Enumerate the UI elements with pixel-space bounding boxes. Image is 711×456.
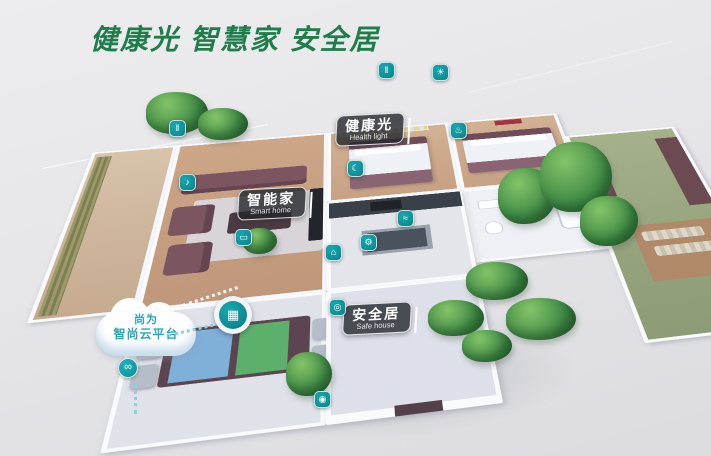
- curtains: [37, 156, 112, 317]
- link-icon: ∞: [118, 358, 138, 378]
- armchair: [167, 204, 216, 237]
- curtain-icon: ‖: [378, 62, 395, 79]
- water-icon: ≈: [397, 210, 414, 227]
- door-icon: ⌂: [325, 244, 342, 261]
- tag-smart-home-en: Smart home: [246, 206, 295, 217]
- curtain-icon: ‖: [169, 120, 186, 137]
- front-door: [394, 400, 443, 417]
- dotted-connection: [134, 384, 137, 414]
- doorbell-icon: ◉: [314, 391, 331, 408]
- tv-icon: ▭: [235, 229, 252, 246]
- tag-health-light-en: Health light: [344, 132, 393, 143]
- smart-hub: ▦: [214, 296, 252, 334]
- toilet: [484, 221, 505, 235]
- bath-icon: ♨: [450, 122, 467, 139]
- speaker-icon: ♪: [179, 174, 196, 191]
- tag-safe-house-en: Safe house: [351, 321, 400, 332]
- sensor-icon: ◎: [329, 299, 346, 316]
- tag-health-light: 健康光 Health light: [335, 112, 405, 147]
- poster-canvas: 健康光 智慧家 安全居: [0, 0, 711, 456]
- smart-hub-icon: ▦: [219, 301, 247, 329]
- armchair: [162, 241, 213, 276]
- cloud-brand: 尚为: [96, 314, 196, 327]
- front-wall: [442, 395, 501, 411]
- tag-safe-house: 安全居 Safe house: [342, 301, 412, 336]
- tag-smart-home: 智能家 Smart home: [237, 186, 307, 221]
- appliance-icon: ⚙: [360, 234, 377, 251]
- planter-box: [655, 137, 711, 205]
- room-kitchen: [326, 190, 478, 291]
- sleep-mode-icon: ☾: [347, 160, 364, 177]
- ceiling-light-icon: ☀: [432, 64, 449, 81]
- cloud-platform: 尚为 智尚云平台: [96, 298, 196, 360]
- cloud-platform-name: 智尚云平台: [96, 327, 196, 342]
- front-wall: [328, 408, 395, 425]
- wall-art: [494, 119, 522, 126]
